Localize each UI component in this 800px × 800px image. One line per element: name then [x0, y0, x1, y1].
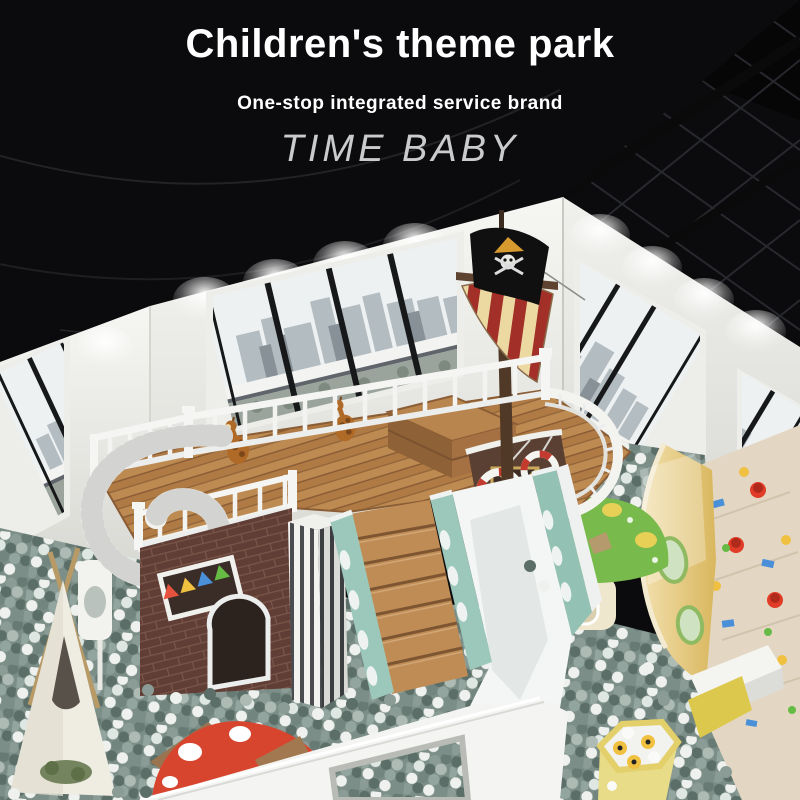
playground-scene [0, 0, 800, 800]
promo-photo: Children's theme park One-stop integrate… [0, 0, 800, 800]
hexagon-play-table [598, 722, 678, 800]
playhouse-door [209, 596, 268, 688]
